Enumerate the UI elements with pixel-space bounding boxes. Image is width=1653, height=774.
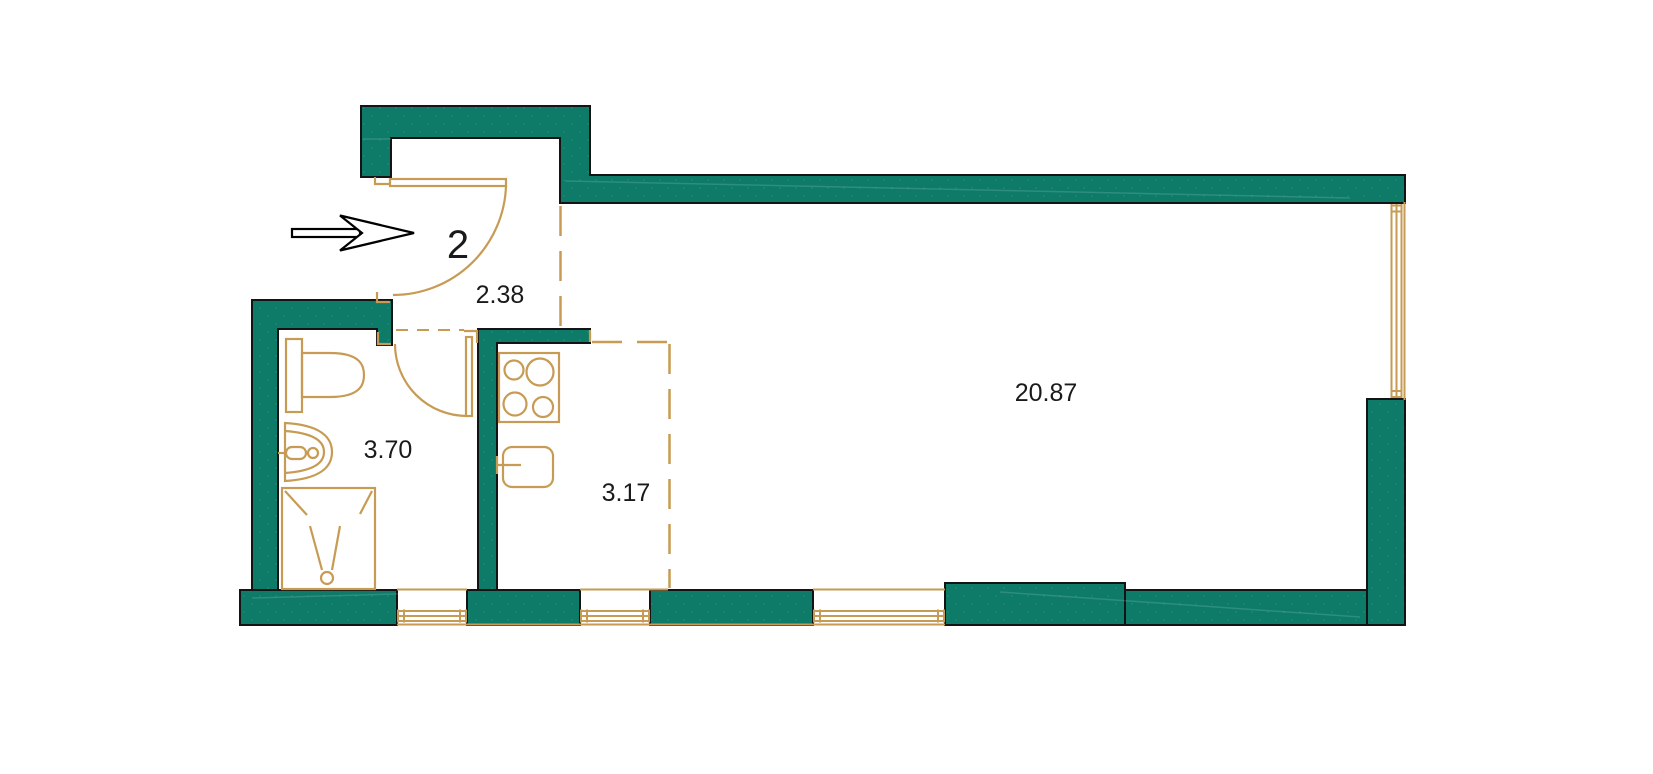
wall-kitchen-divider	[478, 329, 590, 590]
toilet-icon	[286, 339, 364, 412]
windows	[397, 202, 1405, 625]
entrance-arrow-icon	[292, 216, 414, 251]
window-icon	[813, 590, 945, 623]
stove-icon	[499, 353, 559, 422]
wall-bottom-segment	[1125, 590, 1367, 625]
bathroom-area-label: 3.70	[364, 436, 413, 464]
bathroom-fixtures	[278, 339, 375, 589]
wall-bottom-segment	[467, 590, 580, 625]
kitchen-sink-icon	[497, 447, 553, 487]
shower-icon	[282, 488, 375, 589]
kitchen-fixtures	[497, 353, 559, 487]
floor-plan-page: 2 2.38 3.70 3.17 20.87	[0, 0, 1653, 774]
apartment-number-label: 2	[447, 223, 469, 267]
living-room-area-label: 20.87	[1015, 379, 1078, 407]
window-icon	[1391, 202, 1405, 400]
wall-right-column	[1367, 399, 1405, 625]
window-icon	[397, 590, 467, 623]
floor-plan-canvas: 2 2.38 3.70 3.17 20.87	[0, 0, 1653, 774]
kitchen-area-label: 3.17	[602, 479, 651, 507]
hallway-area-label: 2.38	[476, 281, 525, 309]
room-boundaries	[561, 206, 670, 588]
washbasin-icon	[278, 423, 332, 481]
wall-bottom-segment	[650, 590, 813, 625]
wall-bottom-segment	[945, 583, 1125, 625]
